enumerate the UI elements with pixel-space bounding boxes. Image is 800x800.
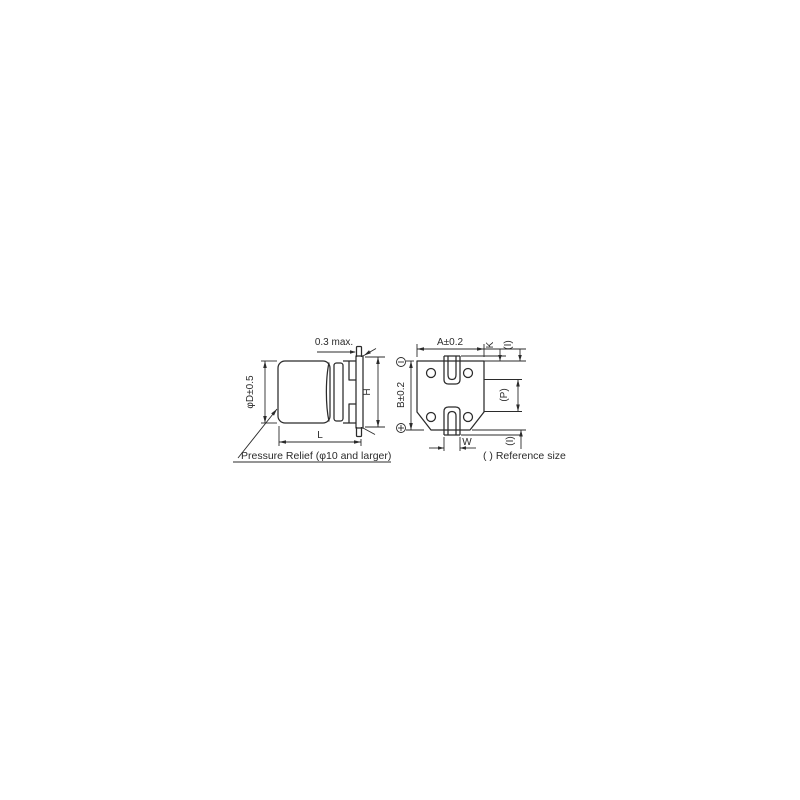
lead-pad-bottom <box>448 412 456 435</box>
dim-lead-width-w: W <box>429 437 476 451</box>
k-label: K <box>485 341 496 348</box>
dim-pitch-p: (P) <box>484 380 522 412</box>
dim-ref-top: (I) <box>503 340 522 361</box>
diameter-label: φD±0.5 <box>245 375 256 409</box>
lead-bottom-bend-line <box>363 428 375 435</box>
plate-hole <box>427 369 436 378</box>
ref-top-label: (I) <box>503 340 514 349</box>
lead-pad-top <box>448 357 456 380</box>
seat-plate-step-bottom <box>349 404 356 423</box>
plate-hole <box>464 413 473 422</box>
negative-terminal-icon <box>397 358 406 367</box>
dim-length: L <box>279 426 361 446</box>
can-end-curve <box>326 363 329 422</box>
capacitor-dimension-diagram: 0.3 max. φD±0.5 L H Pressure Relief (φ10… <box>0 0 800 800</box>
length-label: L <box>317 430 323 441</box>
lead-protrusion-label: 0.3 max. <box>315 337 353 348</box>
pitch-p-label: (P) <box>499 388 510 401</box>
plate-hole <box>427 413 436 422</box>
dim-k: K <box>461 341 526 361</box>
depth-b-label: B±0.2 <box>396 382 407 408</box>
dim-lead-protrusion: 0.3 max. <box>315 337 371 356</box>
positive-terminal-icon <box>397 424 406 433</box>
dim-height: H <box>362 357 385 427</box>
plate-hole <box>464 369 473 378</box>
seal-neck <box>334 363 343 421</box>
dim-depth-b: B±0.2 <box>396 361 424 430</box>
pressure-relief-callout: Pressure Relief (φ10 and larger) <box>233 409 391 462</box>
reference-size-note: ( ) Reference size <box>483 450 566 462</box>
width-a-label: A±0.2 <box>437 337 463 348</box>
pressure-relief-note: Pressure Relief (φ10 and larger) <box>241 450 391 462</box>
ref-bottom-label: (I) <box>505 436 516 445</box>
height-label: H <box>362 388 373 395</box>
capacitor-body <box>278 361 330 423</box>
seat-plate-step-top <box>349 361 356 380</box>
lead-width-w-label: W <box>462 437 472 448</box>
